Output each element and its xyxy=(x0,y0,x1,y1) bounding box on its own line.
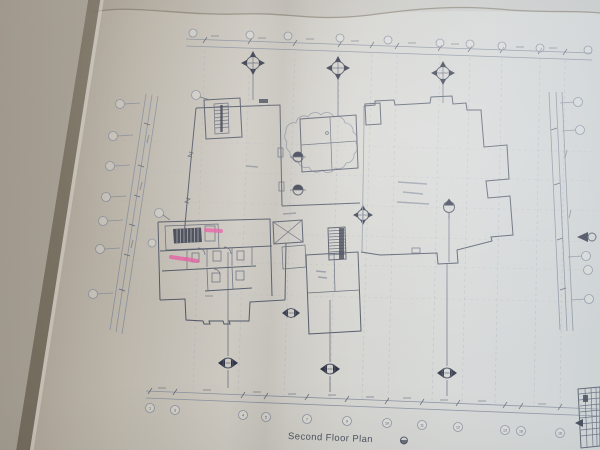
keyplan-arrow-icon xyxy=(575,419,583,427)
section-arrow-icon xyxy=(577,232,588,242)
revision-cloud xyxy=(285,113,358,173)
plan-title: Second Floor Plan xyxy=(288,431,373,445)
grid-bubble-label: 7 xyxy=(306,418,308,422)
section-diamond-marker xyxy=(320,364,340,374)
paper-top-edge xyxy=(0,0,600,18)
grid-bubble-label: 11 xyxy=(420,424,424,428)
grid-bubble-label: 9 xyxy=(346,420,348,424)
core-room-cluster xyxy=(148,209,286,325)
callout-bubble xyxy=(148,239,156,247)
section-flag-marker xyxy=(290,185,306,195)
pink-mark xyxy=(206,230,221,231)
grid-bubble-label: 12 xyxy=(456,426,460,430)
bottom-section-markers xyxy=(218,252,457,396)
wall-detail xyxy=(259,99,268,103)
callout-bubble xyxy=(155,209,164,218)
detail-marker xyxy=(326,56,350,116)
scale-symbol-icon xyxy=(400,437,408,444)
grid-bubble-label: 3 xyxy=(174,409,176,413)
section-diamond-marker xyxy=(437,368,457,378)
middle-section xyxy=(273,103,381,252)
right-grid-band xyxy=(549,92,596,331)
stair-shaft xyxy=(192,91,243,140)
grid-bubble-label: 10 xyxy=(385,422,389,426)
grid-bubble-label: 4 xyxy=(242,414,244,418)
section-diamond-marker xyxy=(282,309,300,318)
pink-mark xyxy=(171,257,184,259)
callout-bubble xyxy=(192,91,201,100)
section-diamond-marker xyxy=(218,358,238,368)
left-grid-band xyxy=(89,94,159,334)
detail-marker xyxy=(241,51,265,100)
grid-bubble-label: 1 xyxy=(149,407,151,411)
pink-mark xyxy=(186,259,197,261)
right-wing-outline xyxy=(361,96,513,264)
bottom-dimension-band: 1 3 4 5 7 9 10 11 12 13 16 18 xyxy=(146,388,599,438)
grid-bubble-label: 18 xyxy=(558,432,562,436)
grid-bubble-label: 5 xyxy=(265,416,267,420)
section-flag-marker xyxy=(290,152,306,162)
left-wing-outline xyxy=(184,99,284,236)
top-dimension-band xyxy=(186,29,592,60)
keyplan-inset xyxy=(575,387,600,448)
grid-dashed-lines xyxy=(99,50,598,407)
floorplan-drawing: 1 3 4 5 7 9 10 11 12 13 16 18 xyxy=(0,0,600,450)
photo-of-blueprint: 1 3 4 5 7 9 10 11 12 13 16 18 xyxy=(0,0,600,450)
grid-bubble-label: 16 xyxy=(519,430,523,434)
plan-title-block: Second Floor Plan xyxy=(288,431,408,447)
grid-bubble-label: 13 xyxy=(503,429,507,433)
